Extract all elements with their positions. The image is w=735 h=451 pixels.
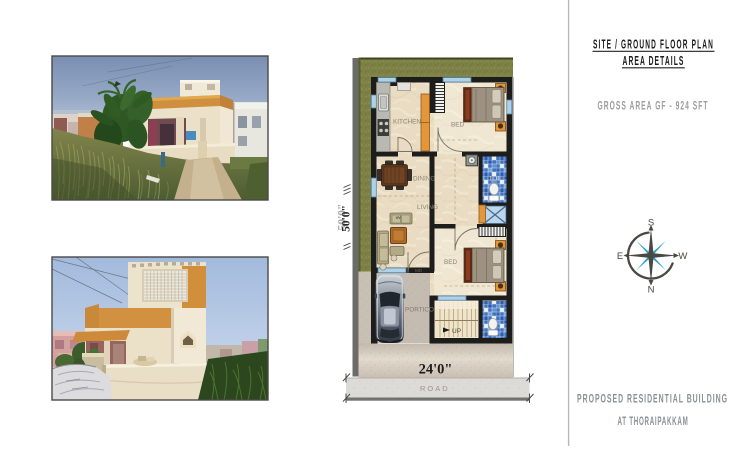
svg-text:SITE / GROUND FLOOR PLAN: SITE / GROUND FLOOR PLAN bbox=[593, 38, 714, 52]
svg-text:N: N bbox=[648, 285, 655, 296]
svg-text:DINING: DINING bbox=[413, 176, 435, 183]
svg-text:ROAD: ROAD bbox=[420, 384, 450, 393]
svg-text:E: E bbox=[617, 251, 623, 262]
svg-text:W: W bbox=[678, 251, 687, 262]
svg-text:50'0": 50'0" bbox=[341, 205, 353, 232]
svg-text:PROPOSED RESIDENTIAL BUILDING: PROPOSED RESIDENTIAL BUILDING bbox=[577, 394, 728, 406]
svg-text:TOI: TOI bbox=[489, 176, 500, 183]
svg-text:AREA DETAILS: AREA DETAILS bbox=[623, 54, 685, 68]
svg-text:BED: BED bbox=[444, 259, 458, 266]
svg-text:S: S bbox=[648, 218, 654, 229]
svg-text:PORTICO: PORTICO bbox=[405, 307, 434, 314]
svg-text:KITCHEN: KITCHEN bbox=[393, 119, 421, 126]
svg-text:UP: UP bbox=[452, 328, 461, 335]
svg-text:GROSS AREA GF - 924 SFT: GROSS AREA GF - 924 SFT bbox=[598, 101, 709, 113]
svg-text:LIVING: LIVING bbox=[417, 204, 438, 211]
svg-text:MD: MD bbox=[415, 268, 423, 273]
svg-text:AT THORAIPAKKAM: AT THORAIPAKKAM bbox=[618, 414, 689, 428]
svg-text:24'0": 24'0" bbox=[419, 362, 453, 378]
svg-text:BED: BED bbox=[451, 122, 465, 129]
